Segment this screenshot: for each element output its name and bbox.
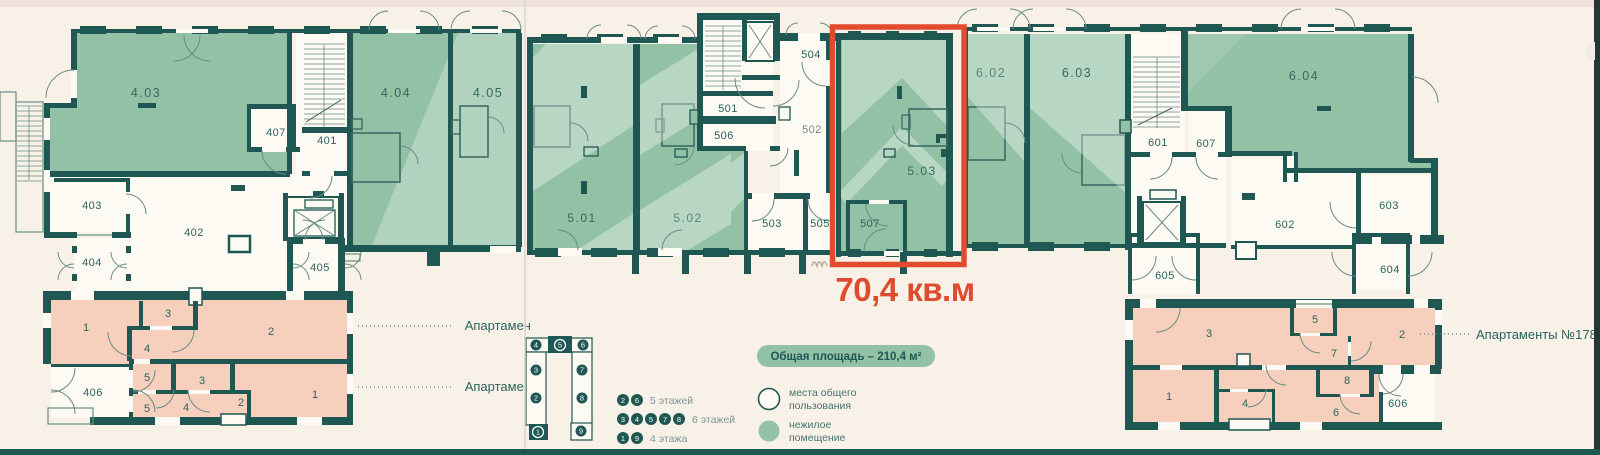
svg-text:602: 602	[1275, 219, 1295, 231]
svg-text:2: 2	[534, 394, 538, 403]
svg-text:Общая площадь – 210,4 м²: Общая площадь – 210,4 м²	[770, 351, 921, 363]
svg-text:605: 605	[1155, 270, 1175, 282]
svg-text:403: 403	[82, 200, 102, 212]
svg-text:5: 5	[144, 372, 150, 384]
svg-text:8: 8	[580, 394, 584, 403]
svg-text:601: 601	[1148, 137, 1168, 149]
svg-text:406: 406	[83, 387, 103, 399]
svg-text:4: 4	[144, 343, 150, 355]
svg-text:5.02: 5.02	[673, 211, 702, 225]
svg-text:8: 8	[677, 415, 681, 424]
svg-text:4.05: 4.05	[473, 86, 503, 100]
svg-text:места общего: места общего	[789, 387, 857, 399]
svg-text:5: 5	[144, 403, 150, 415]
svg-text:1: 1	[83, 322, 89, 334]
svg-text:1: 1	[312, 389, 318, 401]
svg-text:606: 606	[1388, 398, 1408, 410]
svg-text:402: 402	[184, 227, 204, 239]
svg-text:6: 6	[635, 396, 639, 405]
svg-text:Апартамен: Апартамен	[465, 379, 531, 394]
svg-text:3: 3	[621, 415, 625, 424]
svg-text:6.02: 6.02	[976, 66, 1006, 80]
svg-text:405: 405	[310, 262, 330, 274]
svg-text:1: 1	[621, 434, 625, 443]
svg-text:9: 9	[635, 434, 639, 443]
svg-text:1: 1	[536, 428, 540, 437]
svg-text:5.03: 5.03	[907, 164, 936, 178]
svg-text:5 этажей: 5 этажей	[650, 395, 693, 407]
svg-text:407: 407	[266, 127, 286, 139]
svg-text:5.01: 5.01	[567, 211, 596, 225]
svg-text:3: 3	[534, 366, 538, 375]
svg-text:5: 5	[649, 415, 653, 424]
svg-text:2: 2	[268, 326, 274, 338]
svg-text:502: 502	[802, 124, 822, 136]
svg-text:6: 6	[1333, 407, 1339, 419]
svg-text:6.03: 6.03	[1062, 66, 1092, 80]
svg-text:Апартамен: Апартамен	[465, 318, 531, 333]
svg-text:70,4 кв.м: 70,4 кв.м	[835, 271, 974, 308]
svg-text:506: 506	[714, 130, 734, 142]
svg-text:6.04: 6.04	[1289, 69, 1319, 83]
svg-text:Апартаменты №178: Апартаменты №178	[1476, 327, 1597, 342]
svg-text:2: 2	[1399, 329, 1405, 341]
svg-text:3: 3	[165, 308, 171, 320]
svg-text:4 этажа: 4 этажа	[650, 433, 687, 445]
svg-text:2: 2	[238, 397, 244, 409]
svg-text:2: 2	[621, 396, 625, 405]
svg-text:3: 3	[1206, 328, 1212, 340]
svg-text:4: 4	[635, 415, 639, 424]
svg-text:5: 5	[558, 341, 562, 350]
svg-text:404: 404	[82, 257, 102, 269]
svg-text:7: 7	[663, 415, 667, 424]
svg-text:4: 4	[1242, 398, 1248, 410]
svg-text:607: 607	[1196, 138, 1216, 150]
svg-text:4: 4	[534, 341, 538, 350]
svg-text:5: 5	[1312, 314, 1318, 326]
svg-text:503: 503	[762, 218, 782, 230]
svg-text:7: 7	[1331, 348, 1337, 360]
svg-text:4: 4	[183, 402, 189, 414]
svg-text:9: 9	[579, 427, 583, 436]
svg-text:помещение: помещение	[789, 432, 846, 444]
svg-text:1: 1	[1166, 391, 1172, 403]
svg-text:604: 604	[1380, 264, 1400, 276]
svg-text:7: 7	[580, 366, 584, 375]
svg-text:4.04: 4.04	[381, 86, 411, 100]
svg-text:пользования: пользования	[789, 400, 851, 412]
svg-text:507: 507	[860, 218, 880, 230]
svg-text:3: 3	[199, 375, 205, 387]
svg-text:нежилое: нежилое	[789, 419, 831, 431]
svg-text:6 этажей: 6 этажей	[692, 414, 735, 426]
svg-text:603: 603	[1379, 200, 1399, 212]
svg-text:401: 401	[317, 135, 337, 147]
svg-text:4.03: 4.03	[131, 86, 161, 100]
svg-text:505: 505	[810, 218, 830, 230]
svg-text:6: 6	[581, 341, 585, 350]
svg-text:504: 504	[801, 49, 821, 61]
svg-text:501: 501	[718, 103, 738, 115]
svg-text:8: 8	[1344, 375, 1350, 387]
